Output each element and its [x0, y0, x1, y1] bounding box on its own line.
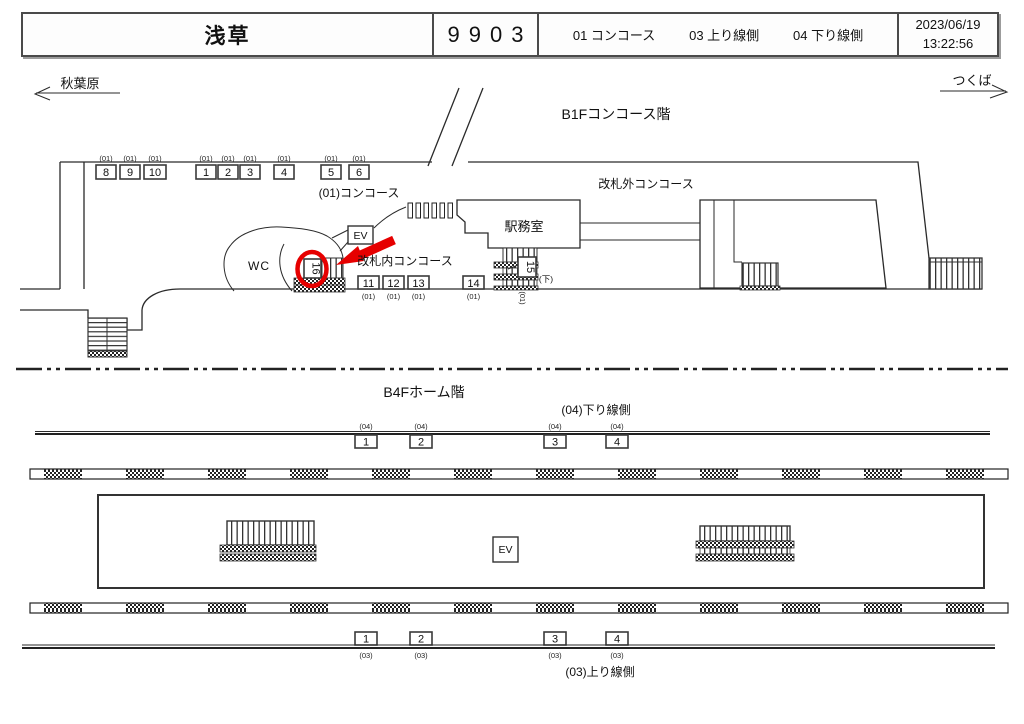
b1f-plan: 秋葉原 つくば B1Fコンコース階 — [20, 73, 1007, 357]
right-hall — [700, 200, 886, 290]
camera-b4f-down-4[interactable]: 4 (04) — [606, 422, 628, 449]
camera-b4f-down-1[interactable]: 1 (04) — [355, 422, 377, 449]
svg-text:8: 8 — [103, 167, 109, 179]
svg-text:3: 3 — [247, 167, 253, 179]
svg-text:15: 15 — [524, 261, 536, 273]
svg-text:5: 5 — [328, 167, 334, 179]
svg-text:3: 3 — [552, 437, 558, 449]
camera-b1f-5[interactable]: 5 (01) — [321, 154, 341, 179]
svg-text:6: 6 — [356, 167, 362, 179]
station-office: 駅務室 — [457, 200, 580, 248]
svg-text:11: 11 — [363, 278, 374, 290]
platform-stairs-right — [696, 526, 794, 561]
camera-b4f-up-1[interactable]: 1 (03) — [355, 632, 377, 660]
camera-b1f-6[interactable]: 6 (01) — [349, 154, 369, 179]
ticket-gates — [408, 203, 453, 218]
svg-text:(01): (01) — [387, 292, 401, 301]
screen: 浅草 9903 01 コンコース 03 上り線側 04 下り線側 2023/06… — [0, 0, 1024, 724]
camera-b4f-up-2[interactable]: 2 (03) — [410, 632, 432, 660]
office-corridor — [580, 223, 700, 240]
gate-bar — [424, 203, 429, 218]
gate-bar — [416, 203, 421, 218]
concourse-label: (01)コンコース — [319, 186, 400, 200]
up-line-label: (03)上り線側 — [565, 664, 634, 679]
camera-b1f-2[interactable]: 2 (01) — [218, 154, 238, 179]
svg-text:(03): (03) — [548, 651, 562, 660]
b4f-floor-label: B4Fホーム階 — [383, 384, 464, 400]
svg-text:(04): (04) — [548, 422, 562, 431]
gate-bar — [448, 203, 453, 218]
camera-b1f-11[interactable]: 11 (01) — [358, 276, 379, 301]
camera-b1f-8[interactable]: 8 (01) — [96, 154, 116, 179]
svg-text:1: 1 — [363, 437, 369, 449]
svg-text:3: 3 — [552, 634, 558, 646]
camera-b1f-10[interactable]: 10 (01) — [144, 154, 166, 179]
svg-text:16: 16 — [310, 262, 322, 274]
camera-b1f-13[interactable]: 13 (01) — [408, 276, 429, 301]
svg-text:(01): (01) — [123, 154, 137, 163]
rail-up — [30, 603, 1008, 613]
svg-text:4: 4 — [281, 167, 287, 179]
down-line-label: (04)下り線側 — [561, 402, 630, 417]
camera-15-group: (01) — [518, 291, 527, 305]
svg-text:(01): (01) — [412, 292, 426, 301]
ev-box-b1f: EV — [348, 226, 373, 244]
svg-text:9: 9 — [127, 167, 133, 179]
camera-b4f-down-2[interactable]: 2 (04) — [410, 422, 432, 449]
svg-text:12: 12 — [387, 278, 399, 290]
platform-stairs-left — [220, 521, 316, 561]
svg-text:13: 13 — [412, 278, 424, 290]
svg-text:(01): (01) — [221, 154, 235, 163]
camera-b1f-16[interactable]: 16 — [304, 259, 322, 278]
svg-text:(01): (01) — [243, 154, 257, 163]
b4f-plan: B4Fホーム階 (04)下り線側 1 (04) 2 (04) 3 (04) — [16, 369, 1008, 679]
left-station-label: 秋葉原 — [60, 76, 99, 91]
svg-text:4: 4 — [614, 437, 620, 449]
camera-b4f-up-3[interactable]: 3 (03) — [544, 632, 566, 660]
camera-b1f-14[interactable]: 14 (01) — [463, 276, 484, 301]
station-office-label: 駅務室 — [504, 219, 543, 234]
svg-text:2: 2 — [418, 437, 424, 449]
svg-text:(01): (01) — [199, 154, 213, 163]
svg-text:(01): (01) — [277, 154, 291, 163]
svg-text:(03): (03) — [414, 651, 428, 660]
camera-b1f-1[interactable]: 1 (01) — [196, 154, 216, 179]
arrow-left: 秋葉原 — [35, 76, 120, 100]
svg-text:(03): (03) — [359, 651, 373, 660]
camera-b1f-4[interactable]: 4 (01) — [274, 154, 294, 179]
svg-text:(04): (04) — [414, 422, 428, 431]
camera-b1f-12[interactable]: 12 (01) — [383, 276, 404, 301]
svg-text:14: 14 — [467, 278, 479, 290]
svg-text:(01): (01) — [99, 154, 113, 163]
svg-text:(01): (01) — [352, 154, 366, 163]
camera-b1f-3[interactable]: 3 (01) — [240, 154, 260, 179]
rail-down — [30, 469, 1008, 479]
exit-stairs-left — [88, 318, 127, 357]
outside-gate-label: 改札外コンコース — [598, 177, 693, 191]
svg-text:4: 4 — [614, 634, 620, 646]
svg-text:(03): (03) — [610, 651, 624, 660]
svg-text:(01): (01) — [324, 154, 338, 163]
camera-15-down-note: (下) — [539, 274, 553, 284]
svg-text:10: 10 — [149, 167, 161, 179]
b1f-left-wall — [20, 162, 84, 289]
camera-b4f-down-3[interactable]: 3 (04) — [544, 422, 566, 449]
gate-bar — [408, 203, 413, 218]
gate-bar — [432, 203, 437, 218]
arrow-right: つくば — [940, 73, 1007, 98]
svg-text:(04): (04) — [359, 422, 373, 431]
gate-bar — [440, 203, 445, 218]
svg-text:1: 1 — [203, 167, 209, 179]
break-lines — [428, 88, 483, 166]
camera-b4f-up-4[interactable]: 4 (03) — [606, 632, 628, 660]
svg-text:(01): (01) — [148, 154, 162, 163]
ev-label-b1f: EV — [353, 230, 367, 242]
svg-text:2: 2 — [418, 634, 424, 646]
svg-text:1: 1 — [363, 634, 369, 646]
svg-text:2: 2 — [225, 167, 231, 179]
svg-text:(01): (01) — [362, 292, 376, 301]
ev-box-b4f: EV — [493, 537, 518, 562]
ev-label-b4f: EV — [498, 544, 512, 556]
right-station-label: つくば — [952, 73, 991, 88]
camera-b1f-9[interactable]: 9 (01) — [120, 154, 140, 179]
b1f-floor-line — [142, 289, 982, 310]
inside-gate-label: 改札内コンコース — [357, 254, 452, 268]
svg-text:(01): (01) — [467, 292, 481, 301]
right-edge-stairs — [929, 258, 982, 289]
station-map: 秋葉原 つくば B1Fコンコース階 — [0, 0, 1024, 724]
svg-text:(04): (04) — [610, 422, 624, 431]
wc-label: WC — [248, 259, 270, 273]
b1f-floor-label: B1Fコンコース階 — [562, 106, 671, 122]
right-hall-stairs — [742, 263, 778, 286]
